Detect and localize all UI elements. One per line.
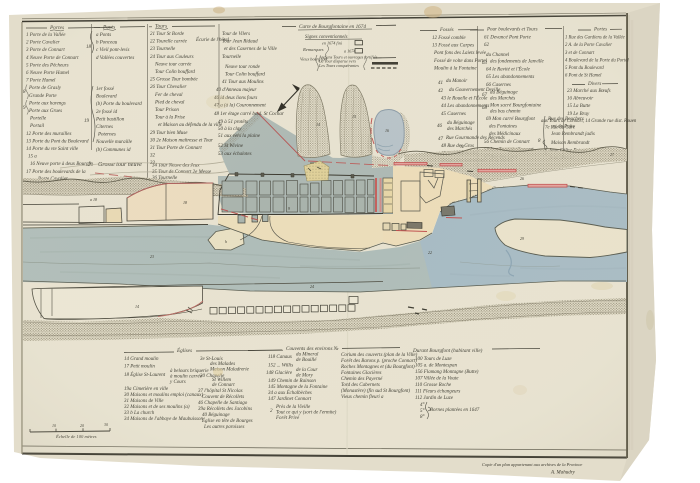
svg-text:A. Mahudry: A. Mahudry bbox=[550, 471, 576, 476]
svg-text:Copie d'un plan appartenant au: Copie d'un plan appartenant aux archives… bbox=[482, 462, 582, 467]
